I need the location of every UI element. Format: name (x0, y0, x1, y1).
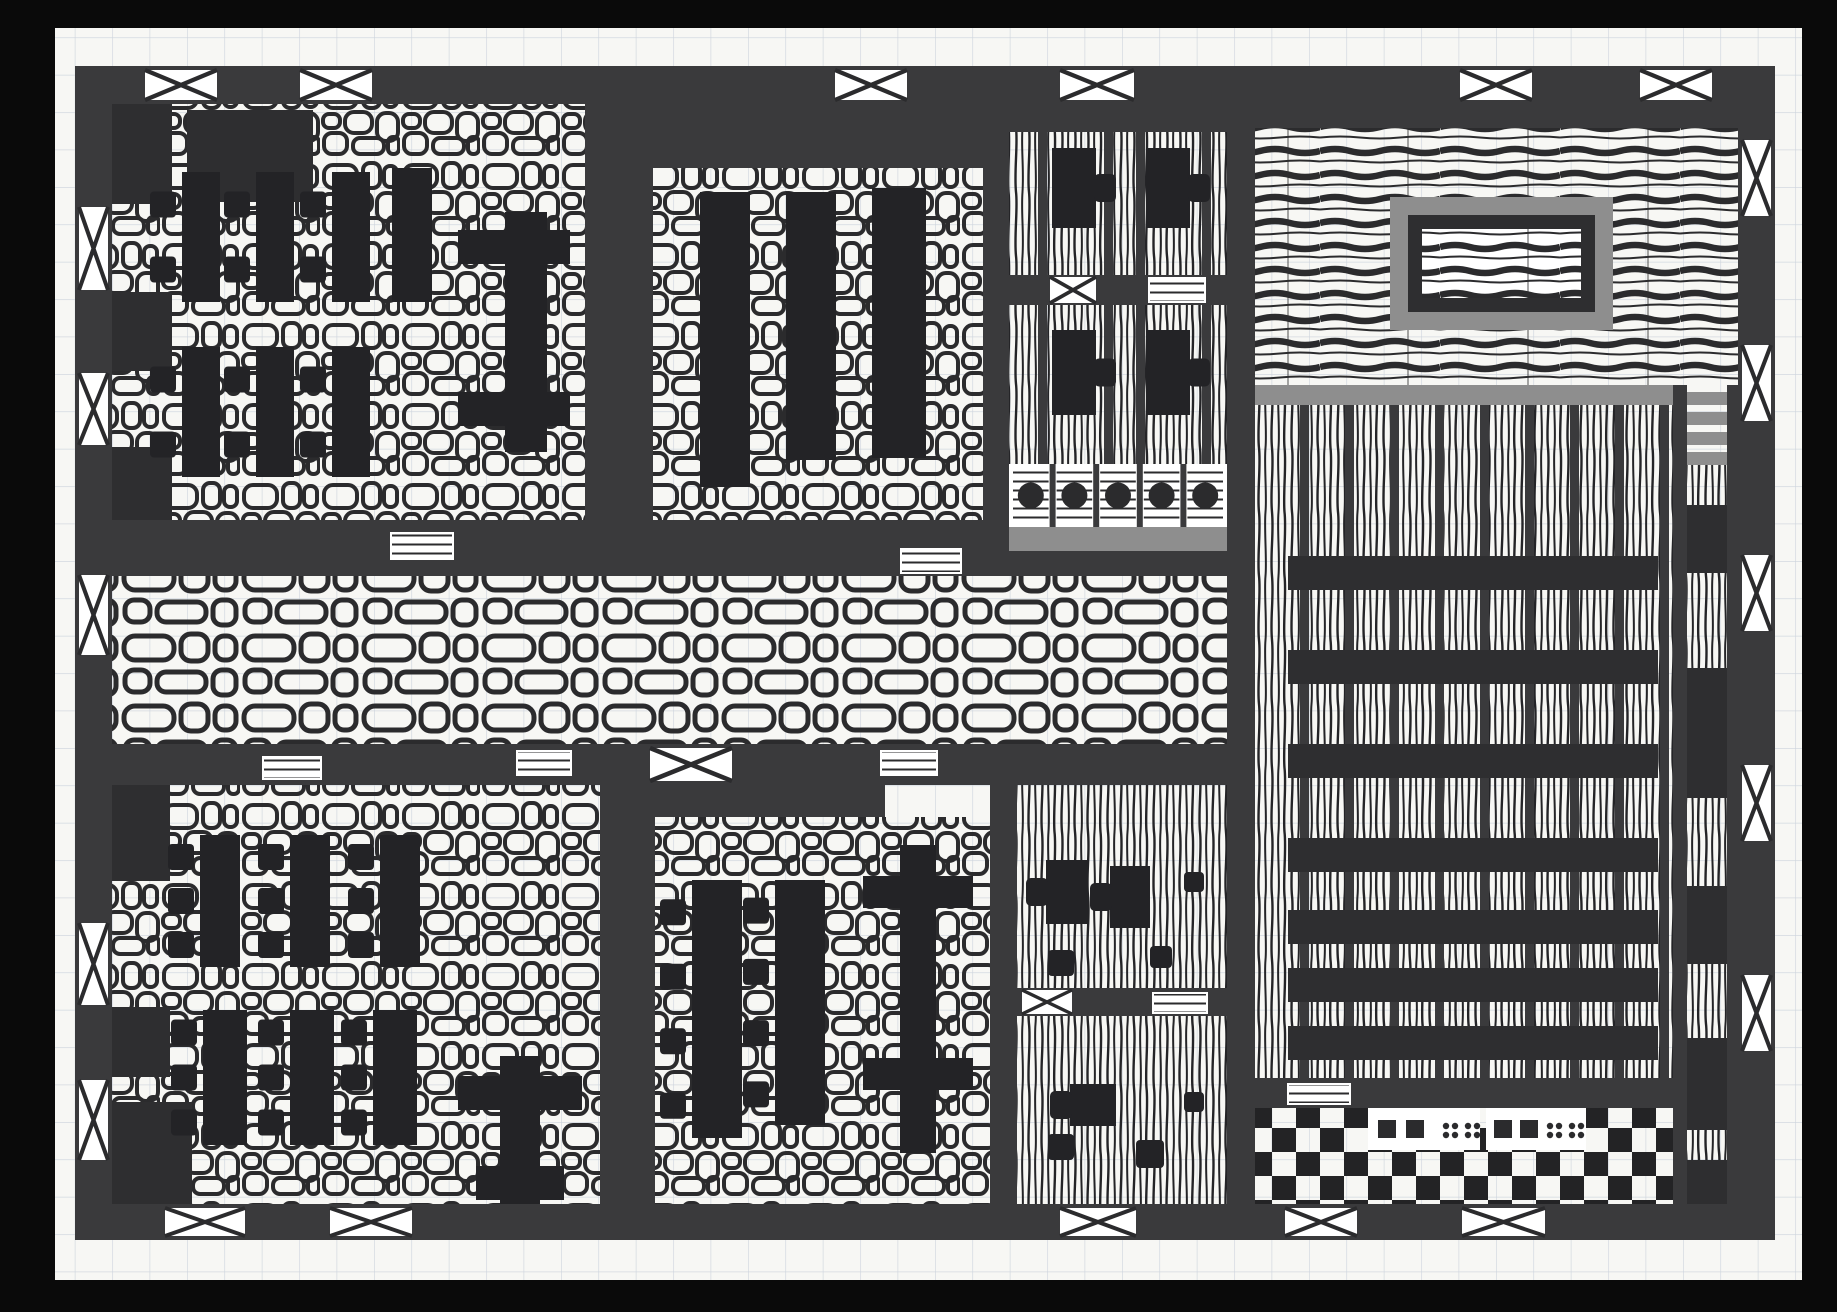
cross-table-arm (458, 230, 570, 264)
square-stool (168, 932, 194, 958)
long-table (700, 192, 750, 487)
long-table (290, 835, 330, 967)
window-x (1742, 140, 1771, 216)
long-table (373, 1010, 417, 1145)
window-x (1640, 70, 1712, 100)
corridor-block (1687, 886, 1727, 964)
cross-table-arm (458, 1076, 582, 1110)
floor-plan-figure (0, 0, 1837, 1312)
square-stool (341, 1110, 367, 1136)
cross-table-arm (476, 1166, 564, 1200)
stool-cell-divider (1093, 464, 1099, 527)
long-bench (1288, 556, 1658, 590)
window-x (79, 923, 108, 1005)
domino-dot (1578, 1123, 1584, 1129)
window-x (300, 70, 372, 100)
long-table (332, 172, 370, 302)
domino-dot (1474, 1132, 1480, 1138)
domino-dot (1556, 1132, 1562, 1138)
booth-table-tab (1090, 883, 1112, 911)
window-x (1060, 70, 1134, 100)
window-x (1285, 1208, 1357, 1236)
booth-table-tab (1050, 1091, 1072, 1119)
stool-cell-divider (1180, 464, 1186, 527)
wall-segment (1738, 66, 1775, 1240)
long-table (872, 188, 926, 458)
square-stool (348, 932, 374, 958)
square-stool (171, 1020, 197, 1046)
square-stool (348, 888, 374, 914)
window-x (330, 1208, 412, 1236)
wall-pillar (112, 1007, 170, 1077)
square-stool (660, 1093, 686, 1119)
domino-square (1378, 1120, 1396, 1138)
square-stool (258, 1065, 284, 1091)
window-x (79, 207, 108, 290)
wall-segment (983, 66, 1009, 520)
wall-segment (653, 104, 983, 168)
long-table (380, 835, 420, 967)
window-x (145, 70, 217, 100)
square-stool (660, 899, 686, 925)
square-stool (660, 964, 686, 990)
booth-table-tab (1094, 174, 1116, 202)
long-table (786, 192, 836, 460)
long-bench (1288, 968, 1658, 1002)
corridor-block (1687, 1160, 1727, 1204)
window-x (79, 575, 108, 655)
window-x (1462, 1208, 1545, 1236)
wall-segment (75, 520, 1009, 576)
square-stool (1184, 1092, 1204, 1112)
domino-dot (1578, 1132, 1584, 1138)
window-x (1742, 975, 1771, 1051)
square-stool (224, 432, 250, 458)
long-table (182, 347, 220, 477)
domino-dot (1443, 1132, 1449, 1138)
vent-lines (1154, 994, 1206, 1012)
booth-table (1052, 330, 1096, 415)
long-table (203, 1010, 247, 1145)
long-table (692, 880, 742, 1138)
wall-segment (1009, 104, 1227, 132)
interior-window-x (1022, 990, 1072, 1014)
long-bench (1288, 910, 1658, 944)
window-x (79, 1080, 108, 1160)
square-stool (258, 844, 284, 870)
booth-table (1070, 1084, 1116, 1126)
window-x (1460, 70, 1532, 100)
wall-pillar (112, 447, 172, 520)
domino-dot (1443, 1123, 1449, 1129)
square-stool (224, 257, 250, 283)
interior-window-x (1050, 277, 1096, 303)
long-table (256, 172, 294, 302)
square-stool (171, 1065, 197, 1091)
stool-cell-divider (1050, 464, 1056, 527)
square-stool (258, 932, 284, 958)
long-bench (1288, 744, 1658, 778)
cross-table-arm (863, 876, 973, 908)
window-x (1060, 1208, 1136, 1236)
square-stool (168, 844, 194, 870)
square-stool (168, 888, 194, 914)
booth-table-tab (1026, 878, 1048, 906)
booth-table (1146, 148, 1190, 228)
domino-square (1520, 1120, 1538, 1138)
corridor-block (1687, 668, 1727, 798)
square-stool (1150, 946, 1172, 968)
square-stool (258, 888, 284, 914)
stair-step (1687, 432, 1727, 445)
vent-lines (882, 752, 936, 774)
stool-cell-divider (1137, 464, 1143, 527)
wall-segment (1009, 551, 1255, 576)
square-stool (341, 1020, 367, 1046)
square-stool (150, 367, 176, 393)
long-bench (1288, 838, 1658, 872)
booth-table (1052, 148, 1096, 228)
gray-band (1255, 385, 1673, 405)
interior-window-x (650, 748, 732, 781)
cross-table-arm (458, 392, 570, 426)
square-stool (224, 367, 250, 393)
booth-table-tab (1188, 359, 1210, 387)
vent-lines (902, 550, 960, 572)
long-table (200, 835, 240, 967)
long-table (775, 880, 825, 1125)
square-stool (341, 1065, 367, 1091)
window-x (165, 1208, 245, 1236)
square-stool (258, 1110, 284, 1136)
square-stool (1136, 1140, 1164, 1168)
domino-dot (1569, 1132, 1575, 1138)
window-x (1742, 555, 1771, 631)
domino-dot (1465, 1132, 1471, 1138)
wall-segment (1673, 385, 1687, 1204)
square-stool (348, 844, 374, 870)
square-stool (150, 432, 176, 458)
long-bench (1288, 1026, 1658, 1060)
bar-stool-round (1149, 483, 1175, 509)
window-x (79, 373, 108, 445)
square-stool (171, 1110, 197, 1136)
booth-table (1046, 860, 1088, 924)
stair-step (1687, 392, 1727, 405)
wall-segment (1227, 66, 1255, 1204)
stair-step (1687, 412, 1727, 425)
square-stool (258, 1020, 284, 1046)
domino-dot (1547, 1123, 1553, 1129)
domino-square (1494, 1120, 1512, 1138)
square-stool (224, 192, 250, 218)
wall-segment (600, 785, 885, 817)
wall-segment (1727, 385, 1738, 1204)
square-stool (300, 192, 326, 218)
wall-segment (1255, 104, 1738, 128)
corridor-block (1687, 505, 1727, 573)
corridor-block (1687, 1038, 1727, 1130)
bar-counter (1009, 527, 1227, 551)
long-table (332, 347, 370, 477)
vent-lines (392, 534, 452, 558)
floor-plan-drawing (0, 0, 1837, 1312)
long-bench (1288, 650, 1658, 684)
window-x (835, 70, 907, 100)
square-stool (150, 192, 176, 218)
long-table (182, 172, 220, 302)
vent-lines (1289, 1085, 1349, 1103)
square-stool (150, 257, 176, 283)
booth-table (1110, 866, 1150, 928)
room-floor-corridor-central (112, 576, 1227, 744)
vent-lines (518, 752, 570, 774)
wall-pillar (112, 292, 172, 371)
wall-segment (585, 66, 653, 524)
square-stool (743, 898, 769, 924)
square-stool (1184, 872, 1204, 892)
stage-floor (1422, 229, 1581, 298)
square-stool (743, 959, 769, 985)
booth-table-tab (1094, 359, 1116, 387)
bar-stool-round (1018, 483, 1044, 509)
mullion (1660, 405, 1669, 1078)
square-stool (660, 1028, 686, 1054)
long-table (290, 1010, 334, 1145)
stair-step (1687, 452, 1727, 465)
booth-table-tab (1188, 174, 1210, 202)
domino-dot (1569, 1123, 1575, 1129)
booth-table (1146, 330, 1190, 415)
square-stool (743, 1081, 769, 1107)
square-stool (1048, 950, 1074, 976)
domino-square (1406, 1120, 1424, 1138)
bar-stool-round (1192, 483, 1218, 509)
window-x (1742, 765, 1771, 841)
square-stool (1048, 1134, 1074, 1160)
vent-lines (264, 758, 320, 778)
wall-pillar (112, 785, 170, 881)
square-stool (300, 367, 326, 393)
long-table (392, 168, 432, 302)
scanned-page (0, 0, 1837, 1312)
domino-dot (1465, 1123, 1471, 1129)
domino-dot (1556, 1123, 1562, 1129)
bar-stool-round (1061, 483, 1087, 509)
window-x (1742, 345, 1771, 421)
domino-dot (1452, 1132, 1458, 1138)
vent-lines (1150, 279, 1204, 301)
square-stool (743, 1020, 769, 1046)
domino-dot (1547, 1132, 1553, 1138)
wall-segment (990, 785, 1017, 1204)
long-table (256, 347, 294, 477)
bar-stool-round (1105, 483, 1131, 509)
square-stool (300, 432, 326, 458)
square-stool (300, 257, 326, 283)
wall-pillar (112, 104, 172, 204)
domino-dot (1452, 1123, 1458, 1129)
domino-dot (1474, 1123, 1480, 1129)
cross-table-arm (863, 1058, 973, 1090)
